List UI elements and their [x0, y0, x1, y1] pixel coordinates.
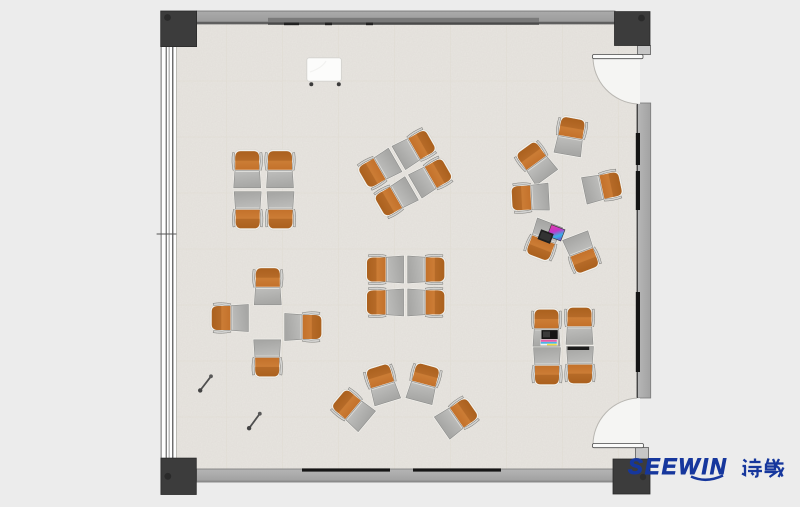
svg-text:SEEWIN: SEEWIN — [628, 454, 728, 479]
